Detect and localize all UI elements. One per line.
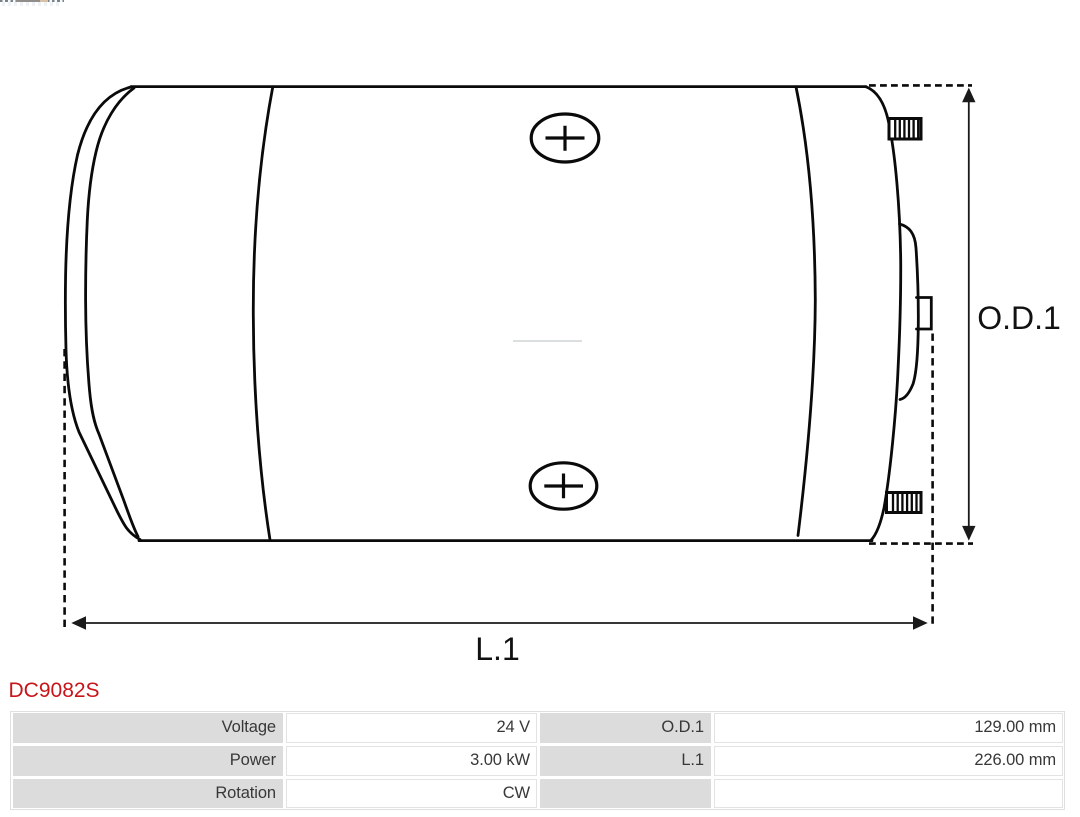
svg-text:O.D.1: O.D.1 — [977, 300, 1061, 336]
svg-text:L.1: L.1 — [475, 631, 519, 667]
